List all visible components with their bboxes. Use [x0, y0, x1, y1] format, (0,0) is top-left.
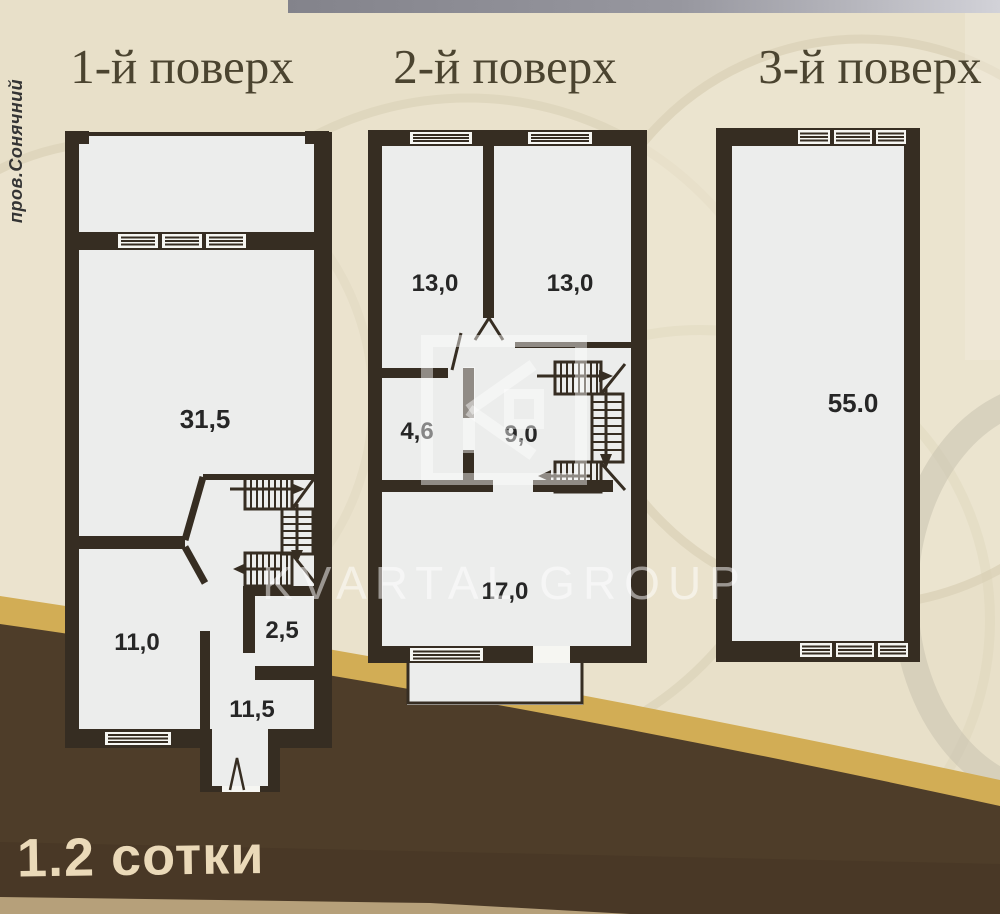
window-symbol [800, 643, 908, 657]
floor1-title: 1-й поверх [57, 38, 307, 96]
room-area-label: 2,5 [265, 617, 298, 644]
room-area-label: 11,0 [114, 629, 159, 656]
floor1-fill [65, 132, 329, 748]
footer-area-text: 1.2 сотки [17, 825, 265, 888]
floor1-plan-drawing: 31,5 11,0 2,5 11,5 [60, 128, 336, 812]
outer-wall [368, 130, 647, 146]
logo-glyph [469, 410, 533, 455]
floor3-title: 3-й поверх [745, 38, 995, 96]
outer-wall [65, 132, 79, 748]
outer-wall [368, 646, 647, 663]
window-symbol [798, 130, 906, 144]
outer-wall [272, 729, 332, 748]
room-area-label: 55.0 [828, 388, 879, 418]
room-area-label: 11,5 [229, 696, 274, 723]
watermark-logo [417, 335, 591, 485]
balcony-fill [407, 663, 583, 705]
window-symbol [410, 648, 483, 661]
inner-wall [255, 666, 314, 680]
inner-wall [200, 631, 210, 729]
room-area-label: 31,5 [180, 404, 231, 434]
window-symbol [105, 732, 171, 745]
floor2-title: 2-й поверх [380, 38, 630, 96]
logo-glyph [509, 394, 539, 424]
outer-wall [314, 132, 332, 748]
terrace-wall [65, 132, 329, 136]
balcony-door-opening [533, 646, 570, 663]
inner-wall [483, 146, 494, 318]
room-area-label: 13,0 [547, 270, 594, 297]
room-area-label: 13,0 [412, 270, 459, 297]
top-gray-strip [288, 0, 1000, 13]
logo-glyph [469, 365, 533, 410]
bottom-tan-strip [0, 897, 630, 914]
footer-dash: - [0, 829, 3, 889]
outer-wall [904, 128, 920, 662]
window-symbol [118, 234, 246, 248]
street-name-label: пров.Сонячний [6, 68, 27, 223]
inner-wall [65, 536, 185, 549]
floorplan-photo: пров.Сонячний 1-й поверх 2-й поверх 3-й … [0, 0, 1000, 914]
watermark-text: KVARTAL GROUP [175, 556, 835, 608]
land-area-label: -1.2 сотки [0, 824, 265, 890]
